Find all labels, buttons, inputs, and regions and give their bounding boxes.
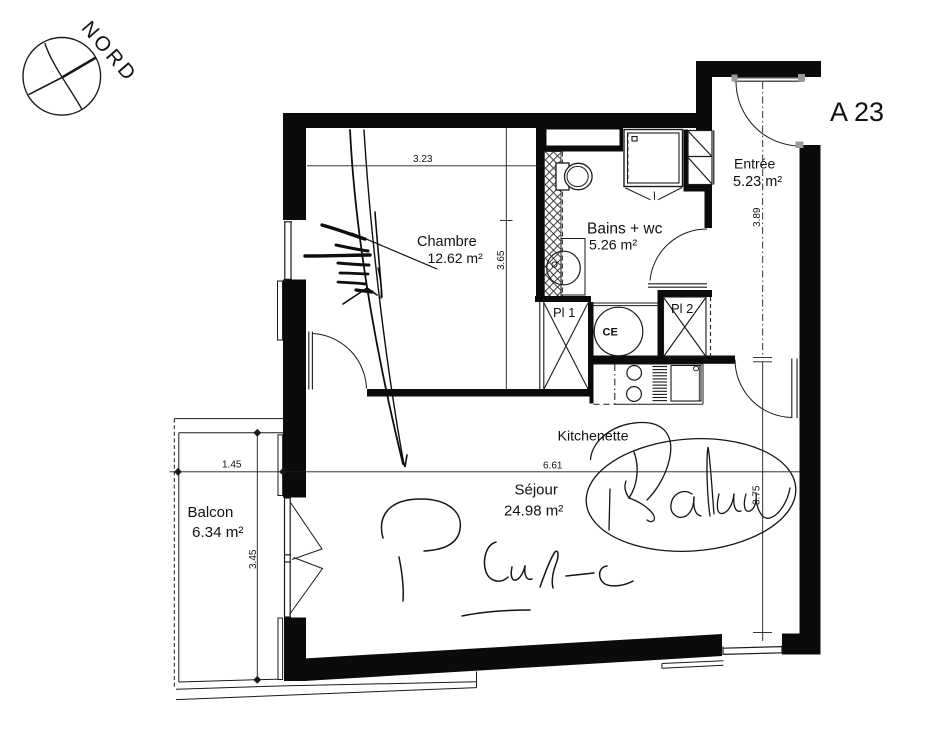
svg-text:5.26 m²: 5.26 m² — [589, 238, 637, 254]
svg-text:12.62 m²: 12.62 m² — [428, 250, 484, 266]
svg-text:Kitchenette: Kitchenette — [558, 429, 629, 445]
svg-text:Chambre: Chambre — [417, 234, 477, 250]
svg-text:1.45: 1.45 — [222, 460, 242, 471]
svg-text:24.98 m²: 24.98 m² — [504, 503, 563, 520]
svg-text:Entrée: Entrée — [734, 156, 775, 172]
svg-text:6.34 m²: 6.34 m² — [192, 524, 244, 541]
svg-text:Pl 2: Pl 2 — [671, 301, 693, 316]
svg-text:Balcon: Balcon — [188, 504, 234, 521]
svg-text:Bains + wc: Bains + wc — [587, 221, 663, 238]
svg-text:3.23: 3.23 — [413, 154, 433, 165]
svg-text:3.89: 3.89 — [752, 207, 763, 227]
svg-text:A 23: A 23 — [830, 97, 884, 127]
svg-text:5.23 m²: 5.23 m² — [733, 174, 782, 190]
svg-text:Pl 1: Pl 1 — [553, 305, 575, 320]
svg-text:Séjour: Séjour — [515, 482, 558, 499]
svg-text:3.45: 3.45 — [248, 549, 259, 569]
svg-text:3.65: 3.65 — [496, 250, 507, 270]
svg-text:6.61: 6.61 — [543, 461, 563, 472]
svg-text:CE: CE — [603, 327, 618, 339]
